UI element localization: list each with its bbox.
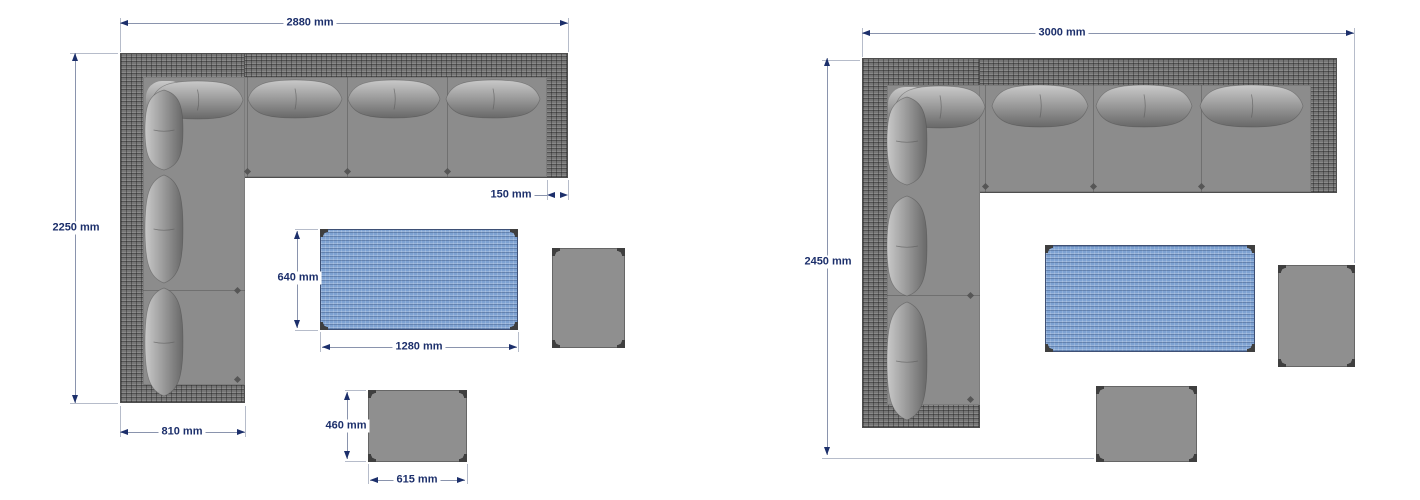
ext-line xyxy=(568,18,569,52)
dim-arrow xyxy=(547,192,555,198)
dim-label-table-depth: 640 mm xyxy=(275,272,322,285)
dim-label-overall-width-left: 2880 mm xyxy=(283,17,336,30)
dim-arrow xyxy=(72,53,78,61)
dim-label-overall-width-right: 3000 mm xyxy=(1035,27,1088,40)
dim-arrow xyxy=(824,58,830,66)
ext-line xyxy=(822,458,1094,459)
dim-arrow xyxy=(294,320,300,328)
ext-line xyxy=(467,464,468,484)
ext-line xyxy=(295,330,318,331)
dim-arrow xyxy=(560,192,568,198)
dim-arrow xyxy=(237,429,245,435)
dim-arrow xyxy=(457,477,465,483)
dim-label-armrest-width: 150 mm xyxy=(488,189,535,202)
dim-leader-armrest xyxy=(533,195,547,196)
dim-arrow xyxy=(509,344,517,350)
dim-label-overall-depth-left: 2250 mm xyxy=(49,222,102,235)
ext-line xyxy=(368,464,369,484)
dim-arrow xyxy=(560,20,568,26)
dim-arrow xyxy=(344,451,350,459)
dim-arrow xyxy=(1346,30,1354,36)
dim-arrow xyxy=(862,30,870,36)
ext-line xyxy=(568,180,569,200)
dim-label-ottoman-depth: 460 mm xyxy=(323,420,370,433)
dim-line-overall-width-left xyxy=(120,23,568,24)
dim-arrow xyxy=(294,231,300,239)
dim-label-arm-section-width: 810 mm xyxy=(159,426,206,439)
ext-line xyxy=(518,332,519,352)
dim-line-overall-width-right xyxy=(862,33,1354,34)
cushions-overlay xyxy=(0,0,1420,500)
dim-label-overall-depth-right: 2450 mm xyxy=(801,256,854,269)
dim-arrow xyxy=(344,392,350,400)
furniture-dimension-drawing: 2880 mm 2250 mm 150 mm 810 mm 640 mm 128… xyxy=(0,0,1420,500)
ext-line xyxy=(345,461,366,462)
dim-label-ottoman-width: 615 mm xyxy=(394,474,441,487)
dim-arrow xyxy=(120,429,128,435)
dim-arrow xyxy=(72,395,78,403)
ext-line xyxy=(295,229,318,230)
ext-line xyxy=(345,390,366,391)
ext-line xyxy=(70,403,118,404)
ext-line xyxy=(1354,28,1355,263)
dim-arrow xyxy=(370,477,378,483)
dim-label-table-width: 1280 mm xyxy=(392,341,445,354)
ext-line xyxy=(320,332,321,352)
dim-arrow xyxy=(824,447,830,455)
dim-arrow xyxy=(322,344,330,350)
ext-line xyxy=(245,406,246,437)
dim-arrow xyxy=(120,20,128,26)
